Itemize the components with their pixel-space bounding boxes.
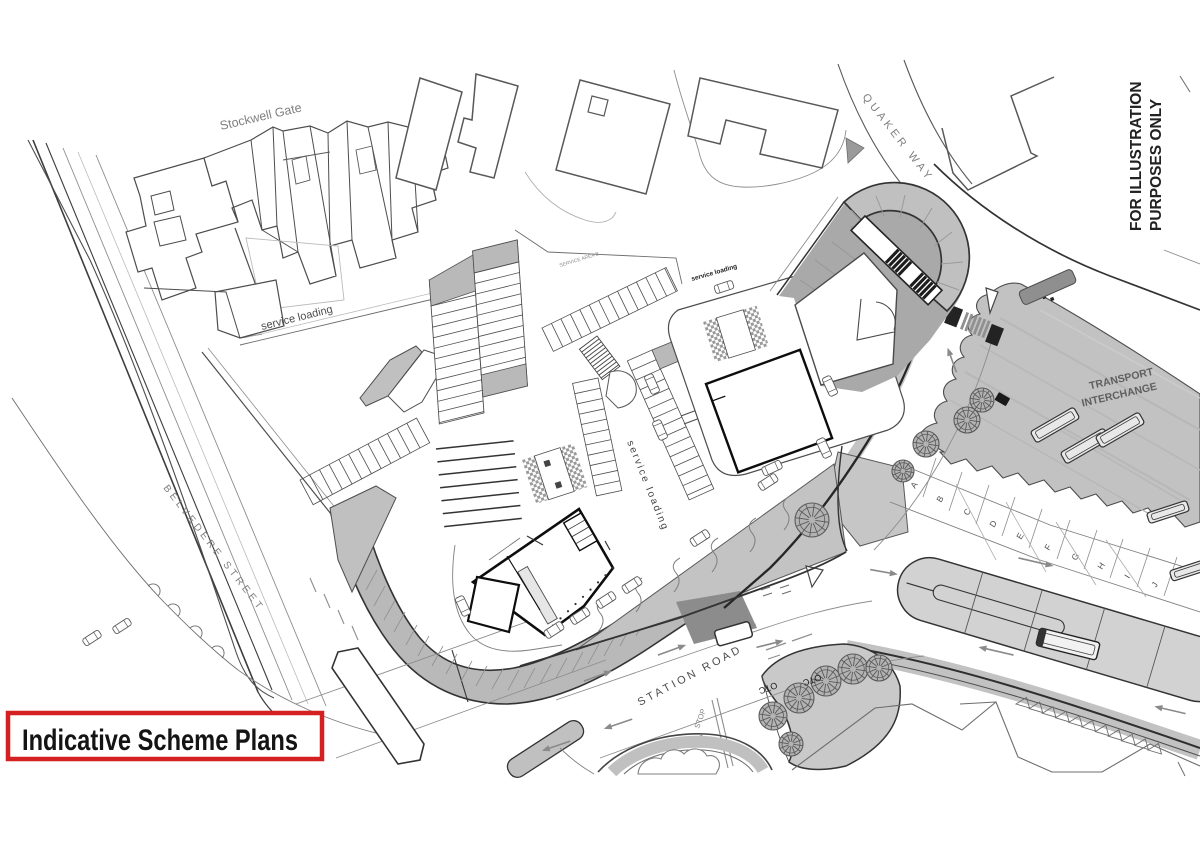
svg-text:Indicative Scheme Plans: Indicative Scheme Plans [22,724,298,757]
svg-text:PURPOSES ONLY: PURPOSES ONLY [1148,98,1165,231]
svg-text:FOR ILLUSTRATION: FOR ILLUSTRATION [1128,81,1145,231]
